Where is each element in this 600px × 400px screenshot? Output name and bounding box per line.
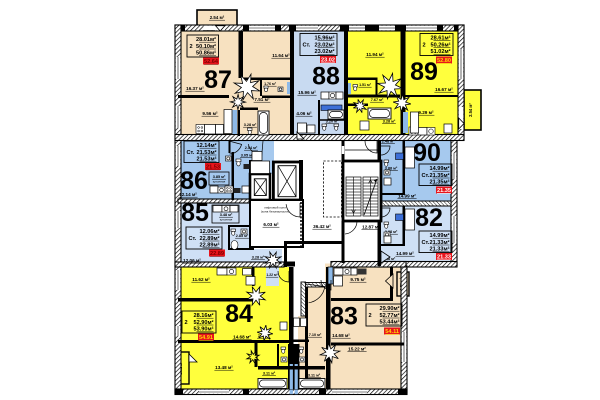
svg-text:11.62 м²: 11.62 м² xyxy=(192,277,210,282)
svg-text:1.51 м²: 1.51 м² xyxy=(359,83,372,87)
svg-text:3.48 м²: 3.48 м² xyxy=(220,213,233,217)
svg-text:90: 90 xyxy=(413,139,441,167)
svg-text:3.85 м²: 3.85 м² xyxy=(213,175,226,179)
svg-text:3.28 м²: 3.28 м² xyxy=(383,120,396,124)
svg-text:2.54 м²: 2.54 м² xyxy=(245,146,258,150)
svg-text:54.91: 54.91 xyxy=(199,335,213,341)
svg-text:Ст.: Ст. xyxy=(189,236,197,242)
svg-text:2.85 м²: 2.85 м² xyxy=(236,234,249,238)
svg-text:11.64 м²: 11.64 м² xyxy=(272,53,290,58)
svg-text:1.76 м²: 1.76 м² xyxy=(264,82,277,86)
svg-text:89: 89 xyxy=(410,58,438,86)
svg-text:12.06 м²: 12.06 м² xyxy=(183,258,201,263)
svg-text:21.53: 21.53 xyxy=(206,165,220,171)
svg-text:12.87 м²: 12.87 м² xyxy=(362,225,380,230)
svg-text:2.54 м²: 2.54 м² xyxy=(210,15,225,20)
svg-text:3.28 м²: 3.28 м² xyxy=(252,256,265,260)
svg-text:2: 2 xyxy=(190,44,193,50)
svg-text:Ст.: Ст. xyxy=(187,150,195,156)
svg-text:23.02: 23.02 xyxy=(321,58,335,64)
svg-text:3.11 м²: 3.11 м² xyxy=(308,374,321,378)
svg-text:кухонная: кухонная xyxy=(220,218,233,222)
svg-text:84: 84 xyxy=(225,300,253,328)
svg-text:Ст.: Ст. xyxy=(303,42,311,48)
svg-text:14.99 м²: 14.99 м² xyxy=(396,251,414,256)
svg-text:36.42 м²: 36.42 м² xyxy=(313,224,331,229)
svg-text:52.80: 52.80 xyxy=(437,58,451,64)
svg-text:6.03 м²: 6.03 м² xyxy=(263,222,279,227)
svg-text:13.48 м²: 13.48 м² xyxy=(215,365,233,370)
svg-text:3.28 м²: 3.28 м² xyxy=(244,123,257,127)
svg-text:14.68 м²: 14.68 м² xyxy=(332,333,350,338)
svg-text:(зона безопасности): (зона безопасности) xyxy=(261,210,289,214)
svg-text:16.37 м²: 16.37 м² xyxy=(186,86,204,91)
svg-text:2.48 м²: 2.48 м² xyxy=(382,140,395,144)
svg-text:4.06 м²: 4.06 м² xyxy=(296,111,312,116)
svg-text:9.75 м²: 9.75 м² xyxy=(350,277,366,282)
svg-text:83: 83 xyxy=(330,303,358,331)
svg-text:2: 2 xyxy=(369,313,372,319)
svg-text:14.68 м²: 14.68 м² xyxy=(233,335,251,340)
svg-text:2: 2 xyxy=(423,42,426,48)
svg-text:2.54 м²: 2.54 м² xyxy=(468,102,473,116)
svg-text:3.20 м²: 3.20 м² xyxy=(326,120,339,124)
svg-text:9.29 м²: 9.29 м² xyxy=(418,110,434,115)
svg-text:2: 2 xyxy=(185,320,188,326)
svg-text:11.94 м²: 11.94 м² xyxy=(366,52,384,57)
svg-text:7.51 м²: 7.51 м² xyxy=(254,97,270,102)
svg-text:87: 87 xyxy=(204,66,232,94)
svg-text:7.10 м²: 7.10 м² xyxy=(309,333,322,337)
svg-text:82: 82 xyxy=(415,204,443,232)
svg-text:1.22 м²: 1.22 м² xyxy=(266,273,278,277)
svg-text:14.99 м²: 14.99 м² xyxy=(398,194,416,199)
svg-text:85: 85 xyxy=(181,199,209,227)
svg-text:21.33: 21.33 xyxy=(437,255,451,261)
svg-text:15.96 м²: 15.96 м² xyxy=(298,90,316,95)
svg-text:54.11: 54.11 xyxy=(385,329,399,335)
svg-text:15.22 м²: 15.22 м² xyxy=(348,347,366,352)
svg-text:21.35: 21.35 xyxy=(437,188,451,194)
svg-text:88: 88 xyxy=(312,63,340,91)
svg-text:52.64: 52.64 xyxy=(204,59,219,65)
svg-text:16.67 м²: 16.67 м² xyxy=(435,87,453,92)
svg-text:86: 86 xyxy=(180,167,208,195)
svg-text:22.89: 22.89 xyxy=(210,251,224,257)
svg-text:кухонная: кухонная xyxy=(213,180,226,184)
svg-text:7.67 м²: 7.67 м² xyxy=(371,98,384,102)
svg-text:9.56 м²: 9.56 м² xyxy=(202,111,218,116)
svg-text:3.11 м²: 3.11 м² xyxy=(263,372,276,376)
